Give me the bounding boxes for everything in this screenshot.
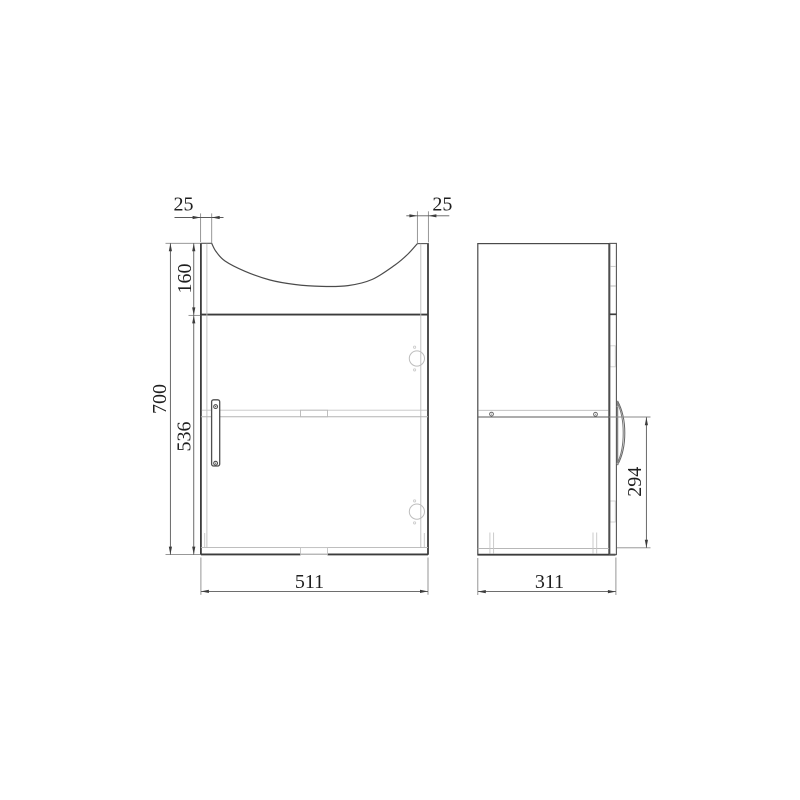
- svg-text:160: 160: [174, 264, 196, 294]
- svg-text:25: 25: [432, 194, 452, 216]
- svg-text:311: 311: [535, 571, 564, 593]
- svg-text:511: 511: [295, 571, 324, 593]
- svg-text:294: 294: [624, 467, 646, 497]
- svg-text:25: 25: [174, 194, 194, 216]
- svg-text:700: 700: [149, 384, 171, 414]
- svg-text:536: 536: [174, 422, 196, 452]
